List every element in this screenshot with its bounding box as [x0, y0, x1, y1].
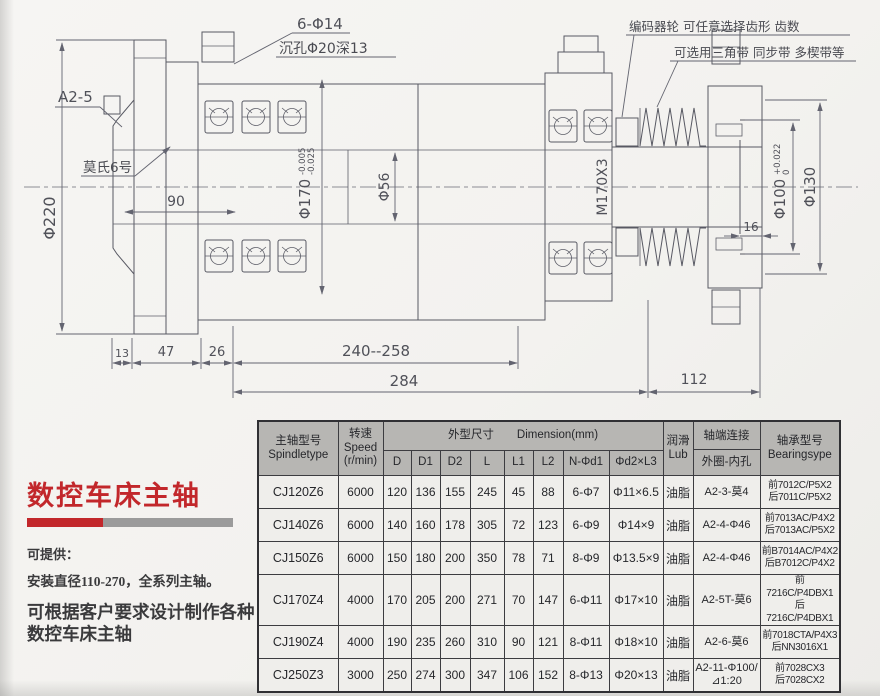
dim240-258-label: 240--258: [342, 342, 410, 360]
table-cell: Φ20×13: [609, 659, 663, 693]
dim90-label: 90: [167, 194, 185, 210]
callout-encoder: 编码器轮 可任意选择齿形 齿数: [622, 19, 850, 117]
col-header-shaft-end-top: 轴端连接: [694, 423, 760, 450]
table-cell: 140: [383, 509, 411, 542]
col-header-d2: D2: [440, 451, 470, 476]
table-cell: 前7013AC/P4X2 后7013AC/P5X2: [760, 509, 840, 542]
dim-thread: M170X3: [595, 158, 611, 215]
col-header-shaft-end: 轴端连接 外圈-内孔: [693, 421, 760, 476]
dim-90: 90: [125, 194, 235, 212]
table-cell: 170: [383, 575, 411, 626]
dim-dia56: Φ56: [377, 153, 395, 221]
col-header-n-d1: N-Φd1: [563, 451, 609, 476]
col-header-dimension-group: 外型尺寸 Dimension(mm): [383, 421, 663, 451]
table-cell: 45: [504, 476, 533, 509]
table-cell: 71: [533, 542, 563, 575]
custom-line-2: 数控车床主轴: [27, 624, 259, 646]
dia220-label: Φ220: [40, 196, 59, 239]
title-underline-bar: [27, 518, 233, 527]
table-cell: 前7216C/P4DBX1 后7216C/P4DBX1: [760, 575, 840, 626]
table-cell: 120: [383, 476, 411, 509]
info-panel: 数控车床主轴 可提供： 安装直径110-270，全系列主轴。 可根据客户要求设计…: [27, 474, 259, 646]
table-cell: 8-Φ11: [563, 626, 609, 659]
table-cell: 6000: [338, 542, 383, 575]
dia130-label: Φ130: [801, 167, 819, 207]
table-row: CJ190Z44000190235260310901218-Φ11Φ18×10油…: [258, 626, 840, 659]
table-cell: 152: [533, 659, 563, 693]
table-cell: 油脂: [663, 542, 693, 575]
table-cell: 121: [533, 626, 563, 659]
dim112-label: 112: [681, 372, 708, 388]
table-cell: 88: [533, 476, 563, 509]
spindle-outline: [104, 32, 762, 334]
table-cell: 前7018CTA/P4X3 后NN3016X1: [760, 626, 840, 659]
table-cell: 前B7014AC/P4X2 后B7012C/P4X2: [760, 542, 840, 575]
table-cell: 155: [440, 476, 470, 509]
table-cell: 147: [533, 575, 563, 626]
custom-line-1: 可根据客户要求设计制作各种: [27, 602, 259, 624]
page-title: 数控车床主轴: [27, 474, 259, 513]
callout-bolt-holes: 6-Φ14 沉孔Φ20深13: [234, 15, 396, 64]
table-cell: 260: [440, 626, 470, 659]
table-cell: 190: [383, 626, 411, 659]
table-cell: 6-Φ9: [563, 509, 609, 542]
encoder-note-label: 编码器轮 可任意选择齿形 齿数: [629, 19, 800, 34]
table-cell: A2-5T-莫6: [693, 575, 760, 626]
table-cell: Φ14×9: [609, 509, 663, 542]
table-cell: CJ150Z6: [258, 542, 338, 575]
table-cell: 4000: [338, 626, 383, 659]
table-cell: 油脂: [663, 659, 693, 693]
table-cell: 前7028CX3 后7028CX2: [760, 659, 840, 693]
callout-spindle-nose: A2-5: [55, 88, 122, 127]
col-header-d1: D1: [411, 451, 440, 476]
table-cell: 300: [440, 659, 470, 693]
col-header-speed: 转速 Speed (r/min): [338, 421, 383, 476]
col-header-bearing: 轴承型号 Bearingsype: [760, 421, 840, 476]
table-cell: CJ170Z4: [258, 575, 338, 626]
table-cell: 245: [470, 476, 504, 509]
table-cell: 油脂: [663, 476, 693, 509]
dim284-label: 284: [390, 372, 419, 390]
belt-note-label: 可选用三角带 同步带 多楔带等: [674, 45, 844, 60]
table-cell: A2-6-莫6: [693, 626, 760, 659]
spec-table: 主轴型号 Spindletype 转速 Speed (r/min) 外型尺寸 D…: [257, 420, 841, 693]
table-row: CJ120Z6600012013615524545886-Φ7Φ11×6.5油脂…: [258, 476, 840, 509]
table-cell: 8-Φ9: [563, 542, 609, 575]
table-row: CJ140Z66000140160178305721236-Φ9Φ14×9油脂A…: [258, 509, 840, 542]
dia170-tol-lower: -0.025: [307, 148, 317, 175]
table-cell: 4000: [338, 575, 383, 626]
offer-heading: 可提供：: [27, 544, 259, 563]
table-cell: 347: [470, 659, 504, 693]
dia170-label: Φ170: [296, 179, 314, 219]
dim-chain-lower: 13 47 26 240--258 284 112: [112, 288, 760, 398]
table-cell: 200: [440, 542, 470, 575]
table-cell: 6-Φ11: [563, 575, 609, 626]
col-header-l: L: [470, 451, 504, 476]
taper-label: 莫氏6号: [83, 160, 132, 176]
col-header-d2xl3: Φd2×L3: [609, 451, 663, 476]
table-row: CJ250Z330002502743003471061528-Φ13Φ20×13…: [258, 659, 840, 693]
dim13-label: 13: [115, 347, 129, 360]
thread-label: M170X3: [595, 158, 611, 215]
table-cell: 178: [440, 509, 470, 542]
table-cell: 350: [470, 542, 504, 575]
table-cell: 200: [440, 575, 470, 626]
dim26-label: 26: [209, 345, 226, 360]
table-cell: CJ250Z3: [258, 659, 338, 693]
table-cell: 310: [470, 626, 504, 659]
spec-table-body: CJ120Z6600012013615524545886-Φ7Φ11×6.5油脂…: [258, 476, 840, 693]
table-cell: CJ120Z6: [258, 476, 338, 509]
table-cell: CJ140Z6: [258, 509, 338, 542]
dia100-label: Φ100: [771, 179, 789, 219]
table-cell: 160: [411, 509, 440, 542]
callout-taper: 莫氏6号: [81, 147, 170, 176]
table-cell: 6000: [338, 476, 383, 509]
table-cell: 油脂: [663, 509, 693, 542]
table-cell: 油脂: [663, 626, 693, 659]
table-cell: 前7012C/P5X2 后7011C/P5X2: [760, 476, 840, 509]
table-cell: 136: [411, 476, 440, 509]
table-cell: 70: [504, 575, 533, 626]
spindle-nose-label: A2-5: [58, 88, 93, 106]
table-cell: 235: [411, 626, 440, 659]
callout-belt: 可选用三角带 同步带 多楔带等: [657, 45, 856, 107]
table-cell: 123: [533, 509, 563, 542]
dia56-label: Φ56: [377, 172, 393, 201]
table-cell: 274: [411, 659, 440, 693]
table-cell: 90: [504, 626, 533, 659]
table-cell: Φ18×10: [609, 626, 663, 659]
table-row: CJ150Z6600015018020035078718-Φ9Φ13.5×9油脂…: [258, 542, 840, 575]
table-cell: 271: [470, 575, 504, 626]
table-cell: A2-3-莫4: [693, 476, 760, 509]
col-header-spindle-type: 主轴型号 Spindletype: [258, 421, 338, 476]
technical-drawing: 6-Φ14 沉孔Φ20深13 编码器轮 可任意选择齿形 齿数 可选用三角带 同步…: [0, 0, 880, 415]
table-cell: 305: [470, 509, 504, 542]
bolt-holes-label: 6-Φ14: [297, 15, 343, 33]
table-cell: 油脂: [663, 575, 693, 626]
rear-flange: [708, 30, 762, 324]
dim47-label: 47: [158, 345, 175, 360]
table-cell: 72: [504, 509, 533, 542]
table-cell: Φ17×10: [609, 575, 663, 626]
table-cell: 205: [411, 575, 440, 626]
table-cell: 250: [383, 659, 411, 693]
table-cell: 6000: [338, 509, 383, 542]
col-header-d: D: [383, 451, 411, 476]
col-header-l2: L2: [533, 451, 563, 476]
table-row: CJ170Z44000170205200271701476-Φ11Φ17×10油…: [258, 575, 840, 626]
col-header-lub: 润滑 Lub: [663, 421, 693, 476]
table-cell: A2-4-Φ46: [693, 509, 760, 542]
dim16-label: 16: [743, 220, 758, 234]
table-cell: Φ13.5×9: [609, 542, 663, 575]
offer-line: 安装直径110-270，全系列主轴。: [27, 570, 259, 590]
table-cell: Φ11×6.5: [609, 476, 663, 509]
counterbore-label: 沉孔Φ20深13: [279, 41, 368, 57]
table-cell: A2-11-Φ100/⊿1:20: [693, 659, 760, 693]
dim-16: 16: [724, 220, 778, 236]
table-cell: A2-4-Φ46: [693, 542, 760, 575]
table-cell: CJ190Z4: [258, 626, 338, 659]
table-cell: 150: [383, 542, 411, 575]
table-cell: 6-Φ7: [563, 476, 609, 509]
col-header-l1: L1: [504, 451, 533, 476]
table-cell: 8-Φ13: [563, 659, 609, 693]
table-cell: 180: [411, 542, 440, 575]
table-cell: 78: [504, 542, 533, 575]
col-header-shaft-end-bottom: 外圈-内孔: [694, 450, 760, 475]
table-cell: 106: [504, 659, 533, 693]
dia100-tol-lower: 0: [782, 170, 792, 175]
table-cell: 3000: [338, 659, 383, 693]
